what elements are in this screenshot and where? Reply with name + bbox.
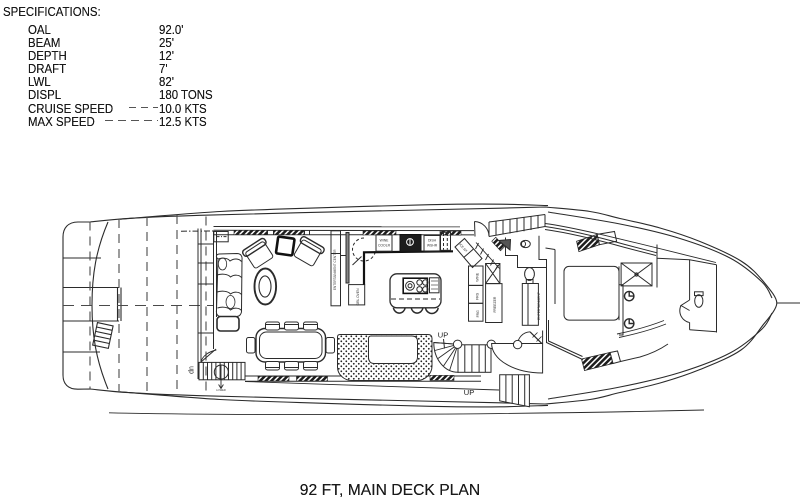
svg-text:ENTERTAINMENT: ENTERTAINMENT bbox=[537, 292, 541, 320]
svg-text:WINE: WINE bbox=[380, 239, 390, 243]
svg-text:WINE: WINE bbox=[475, 272, 479, 282]
svg-text:dn: dn bbox=[189, 366, 196, 374]
svg-text:ENTERTAINMENT CENTER: ENTERTAINMENT CENTER bbox=[333, 249, 337, 290]
svg-text:UP: UP bbox=[438, 331, 448, 340]
svg-text:WSHR: WSHR bbox=[427, 244, 438, 248]
svg-text:LOWER: LOWER bbox=[216, 388, 226, 392]
svg-text:FRG: FRG bbox=[475, 292, 479, 300]
svg-text:FREEZER: FREEZER bbox=[493, 296, 497, 312]
svg-text:GRL OVEN: GRL OVEN bbox=[356, 288, 360, 306]
svg-text:FRG: FRG bbox=[476, 310, 480, 318]
svg-text:COOLR: COOLR bbox=[378, 244, 391, 248]
svg-text:DISH: DISH bbox=[428, 239, 437, 243]
